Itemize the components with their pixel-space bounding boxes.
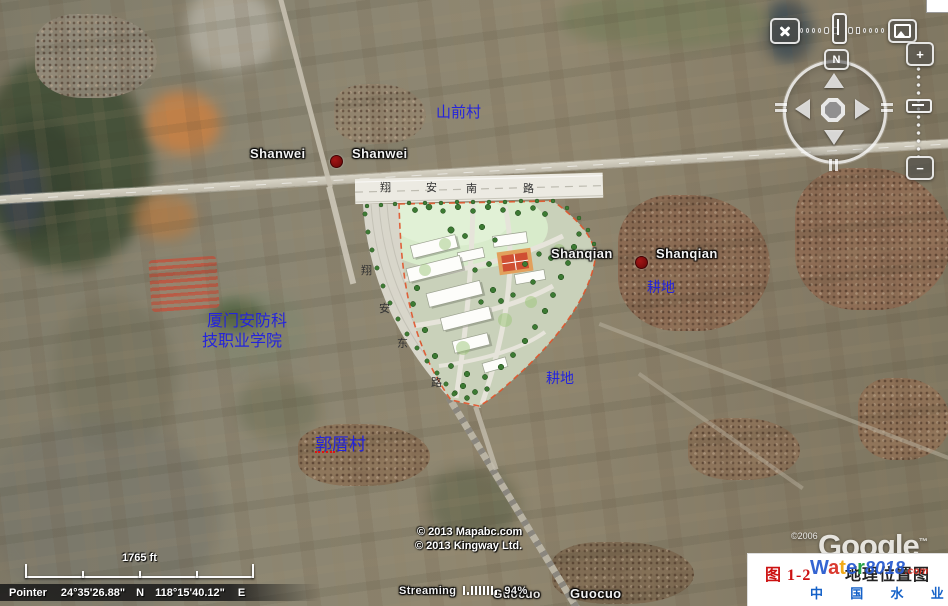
time-slider <box>766 12 918 44</box>
compass-navigation-control: N <box>781 56 887 164</box>
scale-tick <box>139 571 141 578</box>
place-label-guocuo-right: Guocuo <box>570 586 622 601</box>
east-road-char: 安 <box>379 300 390 316</box>
watermark-water8018: Water8018.com <box>810 557 928 580</box>
label-shanqian-village: 山前村 <box>436 101 481 122</box>
pan-up-arrow[interactable] <box>824 73 844 88</box>
place-label-shanqian-right: Shanqian <box>656 246 718 261</box>
time-slider-thumb[interactable] <box>832 13 847 44</box>
pan-right-arrow[interactable] <box>855 99 870 119</box>
scale-distance-label: 1765 ft <box>122 552 157 564</box>
label-school-line2: 技职业学院 <box>202 327 282 351</box>
zoom-slider-thumb[interactable] <box>906 99 932 113</box>
copyright-kingway: © 2013 Kingway Ltd. <box>415 540 522 552</box>
track-dot <box>875 28 878 33</box>
pan-left-arrow[interactable] <box>795 99 810 119</box>
industrial-red-roofs <box>148 256 219 313</box>
placemark-dot-shanwei[interactable] <box>330 155 343 168</box>
imagery-year: ©2006 <box>791 531 818 541</box>
compass-tick-west <box>775 103 787 106</box>
spellcheck-squiggle <box>315 448 335 453</box>
pointer-latitude: 24°35'26.88" <box>61 587 125 599</box>
watermark-site-name: 中 国 水 业 网 <box>810 583 948 602</box>
east-road-char: 翔 <box>361 262 372 278</box>
streaming-bars-icon <box>463 586 497 597</box>
figure-caption-box: 图 1-2 地理位置图 Water8018.com 中 国 水 业 网 <box>747 553 948 606</box>
south-road-char: 翔 <box>380 179 391 195</box>
track-square <box>856 27 860 34</box>
track-dot <box>806 28 809 33</box>
terrain-water <box>0 148 44 234</box>
close-x-icon <box>779 25 791 37</box>
east-road-char: 东 <box>397 335 408 351</box>
track-dot <box>881 28 884 33</box>
scale-tick <box>82 571 84 578</box>
village-topleft <box>35 14 157 98</box>
place-label-shanwei-right: Shanwei <box>352 146 408 161</box>
lon-direction: E <box>238 587 245 599</box>
time-slider-close-button[interactable] <box>770 18 800 44</box>
place-label-shanwei-left: Shanwei <box>250 146 306 161</box>
terrain-soil-2 <box>134 194 196 240</box>
scale-tick-end <box>25 564 27 578</box>
track-dot <box>800 28 803 33</box>
south-road-char: 路 <box>523 180 534 196</box>
village-southeast-2 <box>858 378 948 460</box>
site-plan-overlay <box>355 170 645 415</box>
track-dot <box>869 28 872 33</box>
compass-north-button[interactable]: N <box>824 49 849 70</box>
south-road-band <box>355 173 603 204</box>
village-shanqiancun <box>334 84 426 144</box>
south-road-char: 安 <box>426 179 437 195</box>
streaming-label: Streaming <box>399 585 456 597</box>
zoom-in-button[interactable]: + <box>906 42 934 66</box>
figure-number: 图 1-2 <box>765 561 811 585</box>
compass-tick-south <box>829 159 832 171</box>
streaming-percent: 94% <box>504 585 527 597</box>
scale-tick <box>196 571 198 578</box>
pan-down-arrow[interactable] <box>824 130 844 145</box>
track-dot <box>818 28 821 33</box>
compass-tick-east <box>881 103 893 106</box>
status-bar: Pointer 24°35'26.88" N 118°15'40.12" E <box>0 584 330 601</box>
lat-direction: N <box>136 587 144 599</box>
track-dot <box>863 28 866 33</box>
village-east-2 <box>795 168 948 310</box>
pointer-label: Pointer <box>9 587 47 599</box>
east-road-char: 路 <box>431 374 442 390</box>
compass-tick-south <box>835 159 838 171</box>
copyright-mapabc: © 2013 Mapabc.com <box>417 526 522 538</box>
google-earth-window: 翔 安 南 路 翔 安 东 路 Shanwei Shanwei Shanqian… <box>0 0 948 606</box>
minus-icon: − <box>916 161 924 176</box>
label-farmland-south: 耕地 <box>546 368 574 388</box>
tm-mark: ™ <box>919 537 928 547</box>
place-label-shanqian-left: Shanqian <box>551 246 613 261</box>
streaming-indicator: Streaming 94% <box>399 585 528 597</box>
scale-tick-end <box>252 564 254 578</box>
compass-tick-east <box>881 109 893 112</box>
terrain-soil <box>147 92 221 154</box>
site-plan-rendering <box>355 170 645 415</box>
terrain-woods-mid <box>238 378 320 440</box>
north-label: N <box>833 54 841 66</box>
plus-icon: + <box>916 47 924 62</box>
zoom-control: + − <box>904 40 932 180</box>
compass-tick-west <box>775 109 787 112</box>
track-segment <box>824 27 829 34</box>
page-corner <box>926 0 948 13</box>
track-segment <box>848 27 853 34</box>
placemark-dot-shanqian[interactable] <box>635 256 648 269</box>
south-road-char: 南 <box>466 180 477 196</box>
track-dot <box>812 28 815 33</box>
zoom-out-button[interactable]: − <box>906 156 934 180</box>
pointer-longitude: 118°15'40.12" <box>155 587 225 599</box>
label-farmland-east: 耕地 <box>647 277 675 297</box>
imagery-icon <box>894 24 911 38</box>
